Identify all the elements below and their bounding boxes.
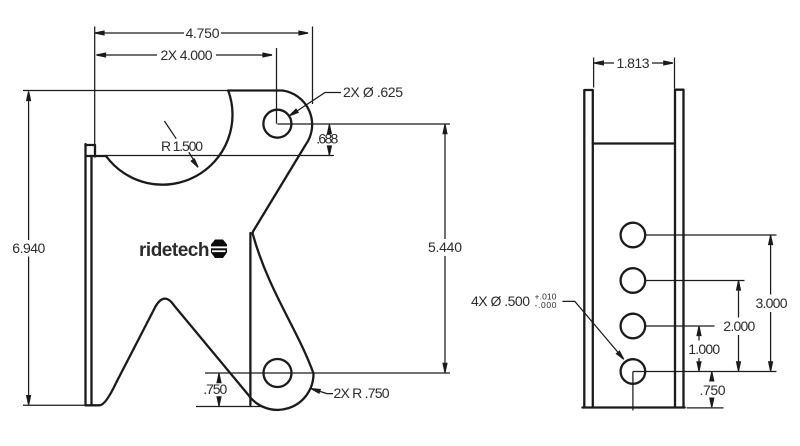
svg-text:1.813: 1.813 xyxy=(617,55,650,71)
svg-text:2X R .750: 2X R .750 xyxy=(334,385,390,401)
svg-text:.688: .688 xyxy=(316,131,338,147)
svg-text:2X Ø .625: 2X Ø .625 xyxy=(343,84,403,100)
svg-text:-.000: -.000 xyxy=(535,300,557,310)
svg-text:6.940: 6.940 xyxy=(12,240,45,256)
svg-text:.750: .750 xyxy=(700,382,726,398)
svg-text:ridetech: ridetech xyxy=(139,240,209,261)
svg-text:4X Ø .500: 4X Ø .500 xyxy=(471,293,530,309)
svg-text:.750: .750 xyxy=(203,381,227,397)
svg-text:1.000: 1.000 xyxy=(688,341,720,357)
svg-text:R 1.500: R 1.500 xyxy=(161,138,203,154)
svg-text:4.750: 4.750 xyxy=(186,25,220,41)
svg-text:5.440: 5.440 xyxy=(428,239,462,255)
svg-text:2.000: 2.000 xyxy=(723,318,755,334)
svg-text:2X 4.000: 2X 4.000 xyxy=(161,47,213,63)
svg-text:3.000: 3.000 xyxy=(756,295,788,311)
